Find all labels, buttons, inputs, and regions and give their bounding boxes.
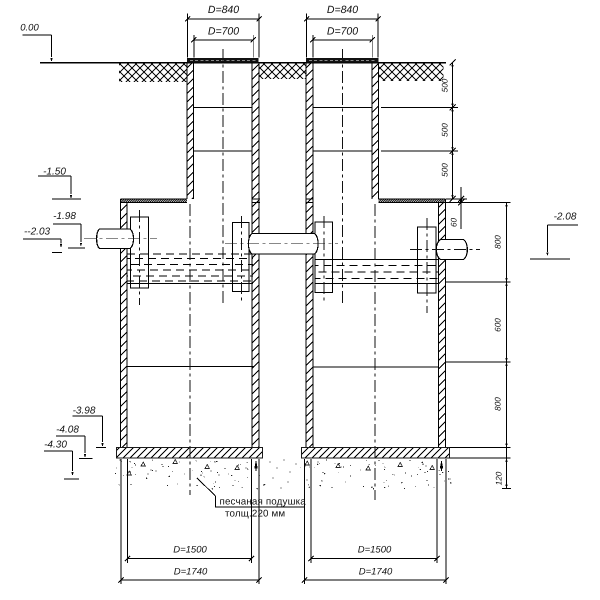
svg-text:песчаная подушка: песчаная подушка [220, 497, 307, 508]
svg-text:D=840: D=840 [208, 4, 239, 16]
svg-text:500: 500 [440, 78, 449, 92]
svg-text:D=1740: D=1740 [359, 567, 393, 578]
svg-text:D=1500: D=1500 [173, 545, 207, 556]
svg-text:-4.08: -4.08 [56, 425, 79, 436]
svg-text:толщ.220 мм: толщ.220 мм [225, 509, 285, 520]
svg-text:-1.98: -1.98 [53, 211, 76, 222]
svg-text:-4.30: -4.30 [44, 440, 67, 451]
svg-text:-3.98: -3.98 [73, 406, 96, 417]
svg-text:D=1740: D=1740 [174, 567, 208, 578]
svg-text:800: 800 [493, 397, 502, 411]
svg-text:--2.03: --2.03 [24, 227, 51, 238]
svg-text:120: 120 [494, 471, 503, 485]
svg-text:-2.08: -2.08 [554, 212, 577, 223]
svg-text:D=700: D=700 [208, 25, 239, 37]
svg-text:500: 500 [440, 163, 449, 177]
svg-text:60: 60 [449, 218, 458, 228]
svg-text:D=700: D=700 [327, 25, 358, 37]
svg-text:500: 500 [440, 123, 449, 137]
svg-text:D=1500: D=1500 [358, 545, 392, 556]
svg-text:0.00: 0.00 [20, 23, 39, 34]
svg-text:800: 800 [493, 235, 502, 249]
svg-text:D=840: D=840 [327, 4, 358, 16]
svg-text:600: 600 [493, 318, 502, 332]
